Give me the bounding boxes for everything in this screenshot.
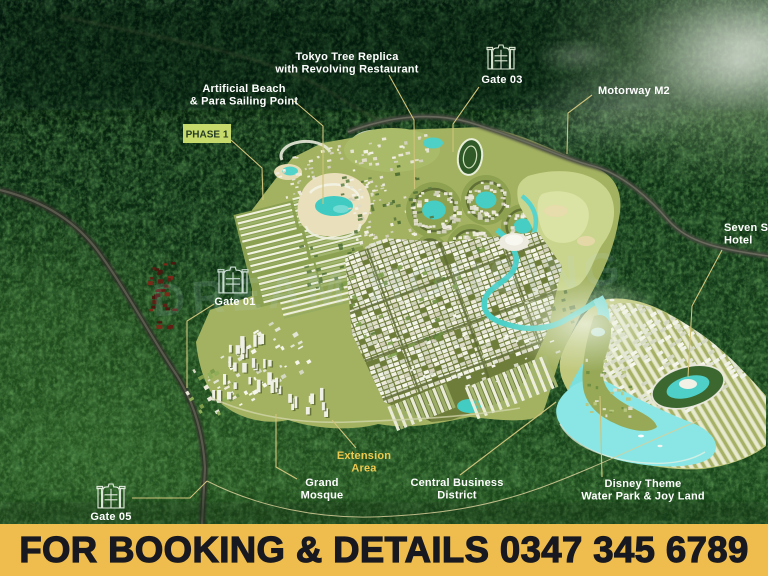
svg-text:Tokyo Tree Replicawith Revolvi: Tokyo Tree Replicawith Revolving Restaur… <box>274 51 418 76</box>
svg-text:PHASE 1: PHASE 1 <box>186 130 229 141</box>
svg-text:Gate 01: Gate 01 <box>214 296 255 308</box>
svg-text:Gate 05: Gate 05 <box>90 511 131 523</box>
svg-text:Gate 03: Gate 03 <box>481 74 522 86</box>
svg-text:Motorway M2: Motorway M2 <box>598 85 670 97</box>
svg-text:Artificial Beach& Para Sailing: Artificial Beach& Para Sailing Point <box>190 83 299 108</box>
svg-text:GrandMosque: GrandMosque <box>301 477 344 502</box>
